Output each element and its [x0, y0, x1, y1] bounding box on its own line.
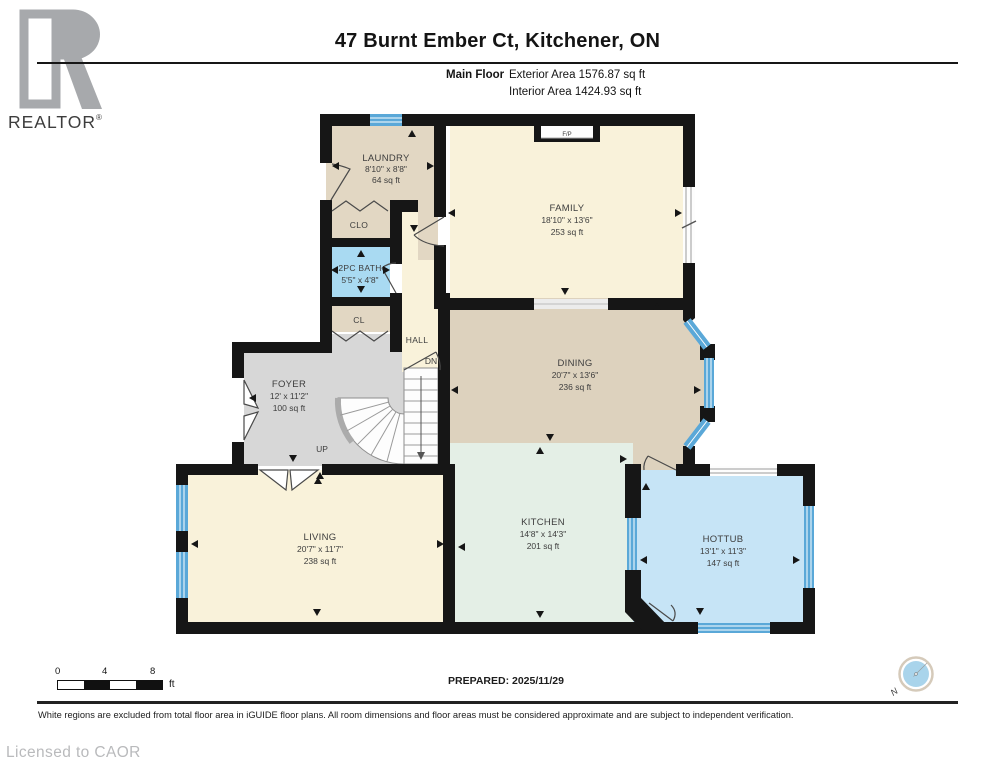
room-bath-dims: 5'5" x 4'8" [341, 275, 378, 285]
room-laundry-dims: 8'10" x 8'8" [365, 164, 407, 174]
stairs-up-label: UP [316, 444, 328, 454]
room-laundry-area: 64 sq ft [372, 175, 401, 185]
room-living-dims: 20'7" x 11'7" [297, 544, 343, 554]
room-family-area: 253 sq ft [551, 227, 584, 237]
room-bath-name: 2PC BATH [338, 263, 381, 273]
room-dining-dims: 20'7" x 13'6" [552, 370, 599, 380]
realtor-r-icon [24, 10, 102, 110]
room-living-name: LIVING [304, 532, 337, 543]
fireplace-label: F/P [562, 132, 571, 138]
room-clo-name: CLO [350, 220, 368, 230]
room-kitchen-name: KITCHEN [521, 517, 565, 528]
realtor-logo-text: REALTOR® [8, 112, 103, 132]
floor-plan-drawing: LAUNDRY 8'10" x 8'8" 64 sq ft FAMILY 18'… [0, 0, 995, 768]
room-laundry-name: LAUNDRY [362, 153, 410, 164]
room-dining-area: 236 sq ft [559, 382, 592, 392]
room-foyer-name: FOYER [272, 379, 306, 390]
room-family-dims: 18'10" x 13'6" [541, 215, 592, 225]
room-foyer-dims: 12' x 11'2" [270, 391, 308, 401]
room-family-name: FAMILY [550, 203, 585, 214]
header-rule [37, 62, 958, 64]
room-kitchen-dims: 14'8" x 14'3" [520, 529, 567, 539]
room-kitchen-area: 201 sq ft [527, 541, 560, 551]
room-foyer-area: 100 sq ft [273, 403, 306, 413]
room-living-area: 238 sq ft [304, 556, 337, 566]
room-hottub-name: HOTTUB [703, 534, 744, 545]
room-cl-name: CL [353, 315, 364, 325]
room-hall-name: HALL [406, 335, 428, 345]
room-hottub-area: 147 sq ft [707, 558, 740, 568]
realtor-logo: REALTOR® [6, 4, 124, 136]
fireplace [534, 120, 600, 142]
stairs-dn-label: DN [425, 356, 437, 366]
room-dining-name: DINING [557, 358, 592, 369]
room-hottub-dims: 13'1" x 11'3" [700, 546, 746, 556]
floor-plan-page: REALTOR® 47 Burnt Ember Ct, Kitchener, O… [0, 0, 995, 768]
